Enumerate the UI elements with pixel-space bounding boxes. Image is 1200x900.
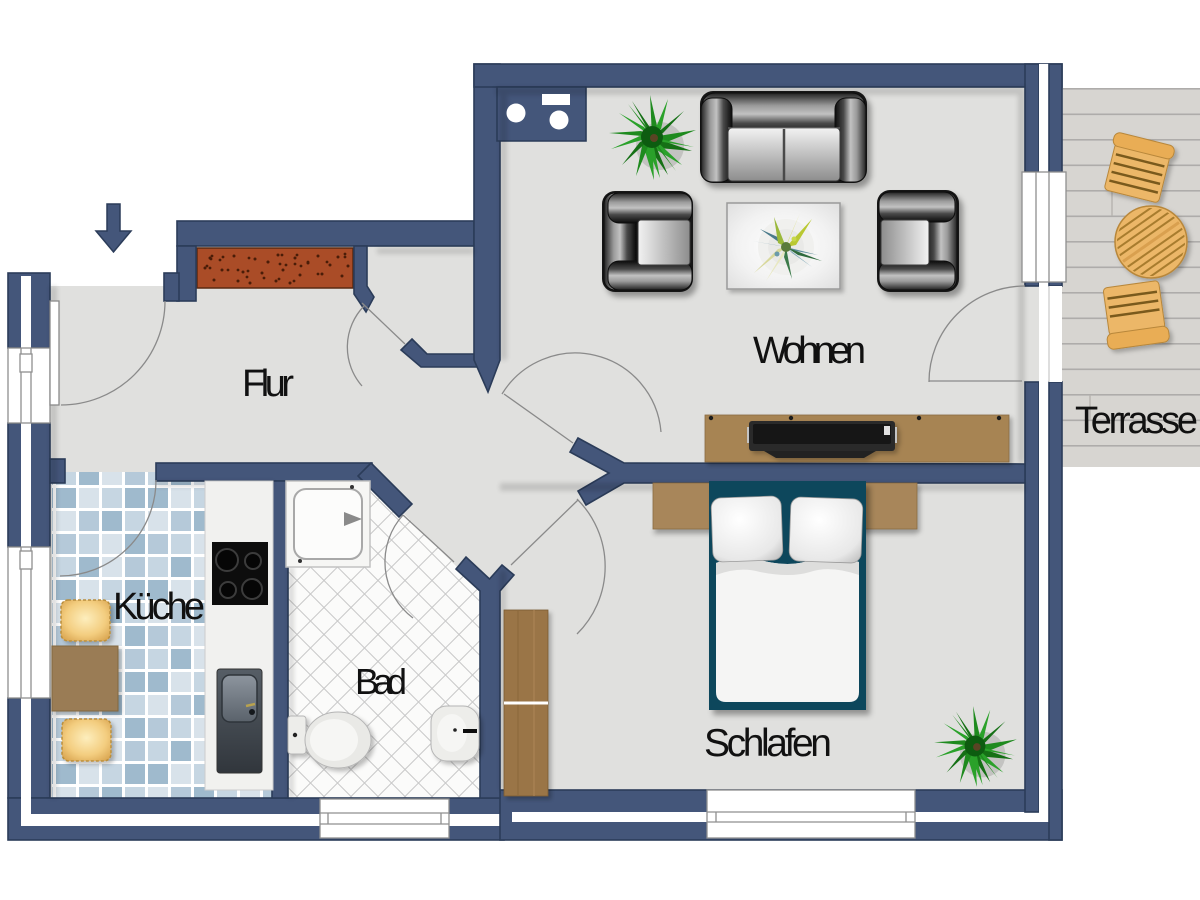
svg-text:Bad: Bad	[355, 661, 407, 702]
svg-text:Küche: Küche	[113, 586, 205, 628]
svg-text:Schlafen: Schlafen	[704, 722, 832, 765]
svg-text:Wohnen: Wohnen	[753, 330, 866, 372]
svg-text:Flur: Flur	[242, 363, 294, 405]
svg-text:Terrasse: Terrasse	[1075, 400, 1198, 442]
